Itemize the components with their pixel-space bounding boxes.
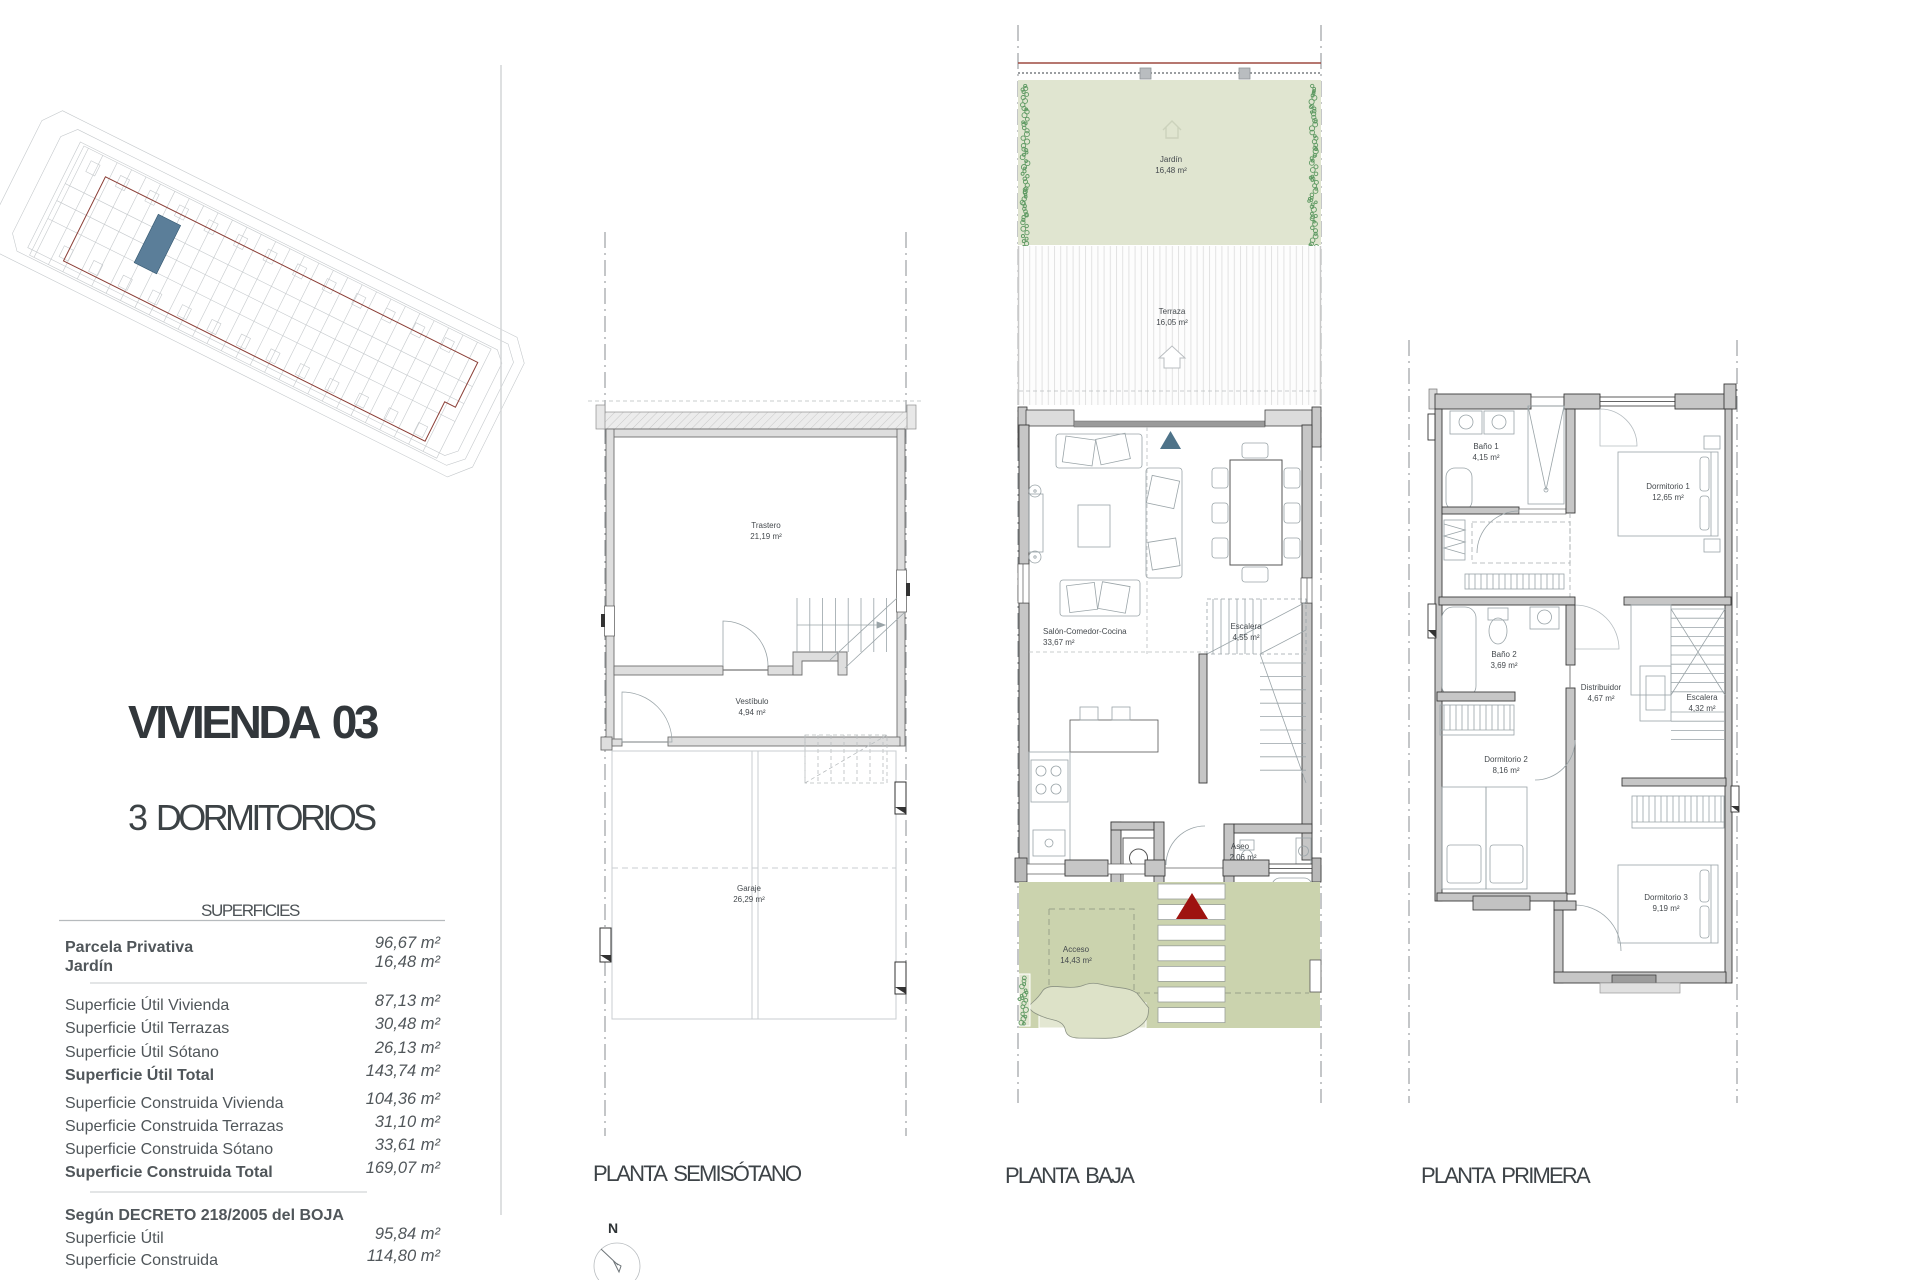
svg-text:143,74 m²: 143,74 m² (366, 1062, 441, 1080)
svg-text:3,69 m²: 3,69 m² (1490, 661, 1517, 670)
svg-text:4,67 m²: 4,67 m² (1587, 694, 1614, 703)
svg-text:30,48 m²: 30,48 m² (375, 1015, 441, 1033)
svg-text:16,48 m²: 16,48 m² (1155, 166, 1187, 175)
svg-text:16,05 m²: 16,05 m² (1156, 318, 1188, 327)
svg-text:4,94 m²: 4,94 m² (738, 708, 765, 717)
svg-text:Superficie Útil Terrazas: Superficie Útil Terrazas (65, 1018, 229, 1037)
svg-text:169,07 m²: 169,07 m² (366, 1159, 441, 1177)
svg-text:12,65 m²: 12,65 m² (1652, 493, 1684, 502)
svg-text:Superficie Construida Sótano: Superficie Construida Sótano (65, 1141, 273, 1158)
svg-text:Escalera: Escalera (1686, 693, 1718, 702)
svg-text:Baño 2: Baño 2 (1491, 650, 1517, 659)
svg-text:Superficie Construida Vivienda: Superficie Construida Vivienda (65, 1095, 284, 1112)
svg-text:Dormitorio 1: Dormitorio 1 (1646, 482, 1690, 491)
svg-text:Salón-Comedor-Cocina: Salón-Comedor-Cocina (1043, 627, 1127, 636)
svg-text:PLANTA SEMISÓTANO: PLANTA SEMISÓTANO (593, 1161, 802, 1186)
svg-text:Dormitorio 3: Dormitorio 3 (1644, 893, 1688, 902)
svg-text:96,67 m²: 96,67 m² (375, 934, 441, 952)
svg-text:Superficie Útil Vivienda: Superficie Útil Vivienda (65, 995, 229, 1014)
svg-text:PLANTA PRIMERA: PLANTA PRIMERA (1421, 1163, 1591, 1188)
svg-text:4,15 m²: 4,15 m² (1472, 453, 1499, 462)
svg-text:VIVIENDA 03: VIVIENDA 03 (128, 696, 378, 748)
svg-text:26,29 m²: 26,29 m² (733, 895, 765, 904)
svg-text:Dormitorio 2: Dormitorio 2 (1484, 755, 1528, 764)
svg-text:Garaje: Garaje (737, 884, 762, 893)
svg-text:33,67 m²: 33,67 m² (1043, 638, 1075, 647)
svg-text:104,36 m²: 104,36 m² (366, 1090, 441, 1108)
svg-text:4,55 m²: 4,55 m² (1232, 633, 1259, 642)
svg-text:PLANTA BAJA: PLANTA BAJA (1005, 1163, 1135, 1188)
svg-text:95,84 m²: 95,84 m² (375, 1225, 441, 1243)
svg-text:33,61 m²: 33,61 m² (375, 1136, 441, 1154)
svg-text:9,19 m²: 9,19 m² (1652, 904, 1679, 913)
svg-text:Acceso: Acceso (1063, 945, 1090, 954)
svg-text:Parcela Privativa: Parcela Privativa (65, 939, 193, 956)
svg-text:3 DORMITORIOS: 3 DORMITORIOS (128, 797, 376, 838)
svg-text:Terraza: Terraza (1159, 307, 1186, 316)
svg-text:4,32 m²: 4,32 m² (1688, 704, 1715, 713)
svg-text:Trastero: Trastero (751, 521, 781, 530)
svg-text:Jardín: Jardín (65, 958, 113, 975)
svg-text:Jardín: Jardín (1160, 155, 1182, 164)
svg-text:Baño 1: Baño 1 (1473, 442, 1499, 451)
svg-text:Superficie Construida: Superficie Construida (65, 1252, 218, 1269)
svg-text:Según DECRETO 218/2005 del BOJ: Según DECRETO 218/2005 del BOJA (65, 1207, 344, 1224)
svg-text:114,80 m²: 114,80 m² (367, 1247, 441, 1265)
svg-text:Superficie Construida Total: Superficie Construida Total (65, 1164, 273, 1181)
svg-text:31,10 m²: 31,10 m² (375, 1113, 441, 1131)
svg-text:Distribuidor: Distribuidor (1581, 683, 1622, 692)
svg-text:Superficie Útil Total: Superficie Útil Total (65, 1065, 214, 1084)
svg-text:Superficie Útil: Superficie Útil (65, 1228, 164, 1247)
svg-text:SUPERFICIES: SUPERFICIES (201, 901, 300, 920)
svg-text:26,13 m²: 26,13 m² (374, 1039, 441, 1057)
svg-text:Vestíbulo: Vestíbulo (736, 697, 769, 706)
svg-text:Escalera: Escalera (1230, 622, 1262, 631)
svg-text:N: N (608, 1220, 618, 1236)
svg-text:Superficie Útil Sótano: Superficie Útil Sótano (65, 1042, 219, 1061)
svg-text:14,43 m²: 14,43 m² (1060, 956, 1092, 965)
svg-text:Superficie Construida Terrazas: Superficie Construida Terrazas (65, 1118, 283, 1135)
svg-text:87,13 m²: 87,13 m² (375, 992, 441, 1010)
svg-text:8,16 m²: 8,16 m² (1492, 766, 1519, 775)
svg-text:16,48 m²: 16,48 m² (375, 953, 441, 971)
svg-text:Aseo: Aseo (1231, 842, 1250, 851)
svg-text:21,19 m²: 21,19 m² (750, 532, 782, 541)
